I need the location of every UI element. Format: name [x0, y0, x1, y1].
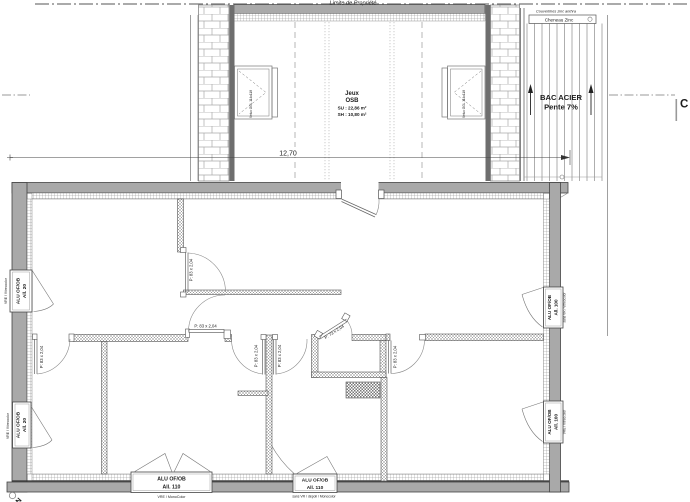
svg-text:ALU OF/OB: ALU OF/OB [547, 294, 552, 320]
svg-text:All. 20: All. 20 [22, 284, 28, 298]
svg-text:P: 83 x 2,04: P: 83 x 2,04 [194, 324, 217, 329]
svg-text:P: 83 x 2,04: P: 83 x 2,04 [189, 258, 194, 281]
svg-text:All. 100: All. 100 [554, 299, 559, 316]
svg-text:All. 20: All. 20 [22, 418, 28, 432]
svg-text:Cheneau Zinc: Cheneau Zinc [545, 17, 574, 22]
svg-text:Limite de Propriété: Limite de Propriété [330, 1, 377, 7]
svg-text:OSB: OSB [345, 98, 359, 104]
svg-text:Velux GGL 114x118: Velux GGL 114x118 [249, 90, 253, 118]
svg-text:ALU OF/OB: ALU OF/OB [16, 411, 22, 438]
svg-text:Pente 7%: Pente 7% [544, 103, 578, 112]
svg-text:BAC ACIER: BAC ACIER [540, 93, 582, 102]
svg-text:C: C [680, 99, 688, 111]
svg-text:P: 83 x 2,04: P: 83 x 2,04 [277, 344, 282, 367]
svg-text:Velux GGL 114x118: Velux GGL 114x118 [462, 90, 466, 118]
svg-text:Couvertines zinc anthra: Couvertines zinc anthra [536, 10, 576, 14]
svg-text:VRE / MonoColor: VRE / MonoColor [158, 495, 187, 499]
svg-text:P: 83 x 2,04: P: 83 x 2,04 [39, 345, 44, 368]
svg-text:ALU OF/OB: ALU OF/OB [302, 478, 329, 484]
svg-text:P: 83 x 2,04: P: 83 x 2,04 [393, 345, 398, 368]
svg-text:VRE / Vitreocolor: VRE / Vitreocolor [6, 412, 10, 439]
svg-text:All. 110: All. 110 [307, 485, 324, 491]
svg-text:All. 110: All. 110 [163, 485, 181, 491]
svg-text:ALU OF/OB: ALU OF/OB [157, 477, 186, 483]
svg-text:VRE / Vitreocolor: VRE / Vitreocolor [4, 277, 8, 304]
svg-text:ALU OF/OB: ALU OF/OB [547, 409, 552, 435]
svg-text:VRE / Vitreocolor: VRE / Vitreocolor [563, 409, 567, 434]
svg-text:sans VR / Vitreocolor: sans VR / Vitreocolor [563, 292, 567, 323]
svg-text:12,70: 12,70 [279, 151, 297, 158]
svg-text:ALU OF/OB: ALU OF/OB [16, 277, 22, 304]
svg-text:SH : 10,80 m²: SH : 10,80 m² [338, 112, 367, 117]
svg-text:SU : 22,86 m²: SU : 22,86 m² [338, 106, 367, 111]
svg-text:P: 83 x 2,04: P: 83 x 2,04 [254, 344, 259, 367]
svg-text:All. 100: All. 100 [554, 414, 559, 431]
svg-text:sans VR / dépoli / Monocolor: sans VR / dépoli / Monocolor [292, 495, 336, 499]
svg-text:Jeux: Jeux [345, 91, 359, 97]
